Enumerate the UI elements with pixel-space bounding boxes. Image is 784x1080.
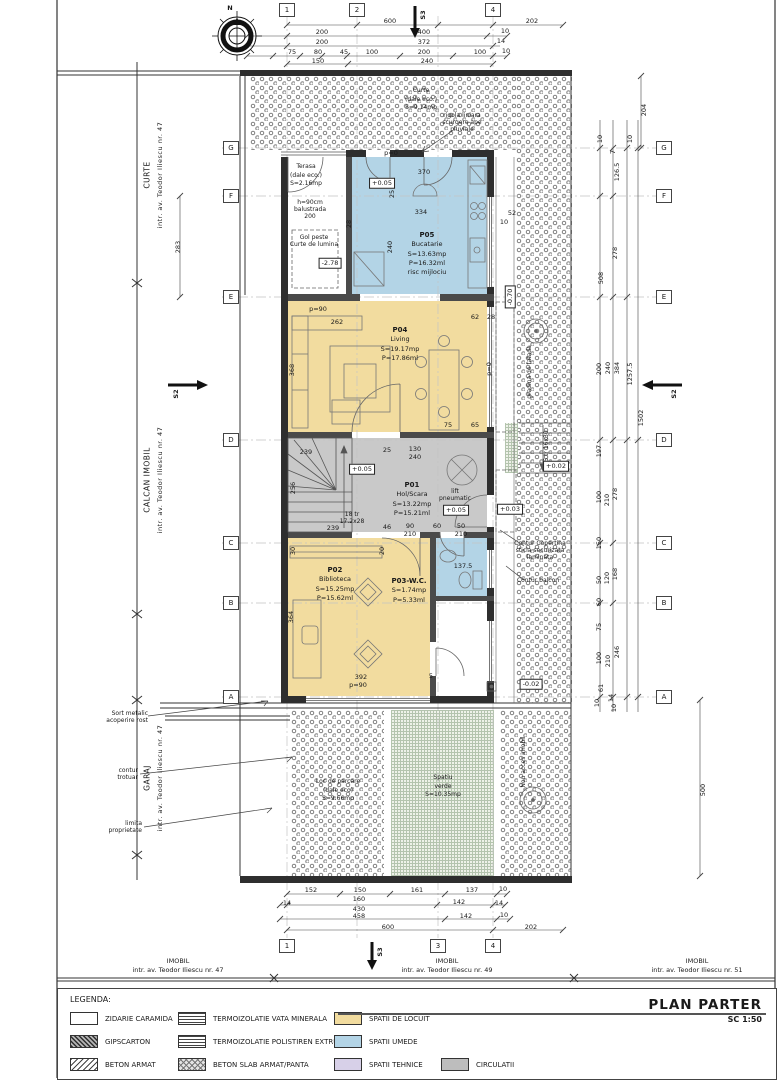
trot-l1: contur bbox=[70, 767, 138, 774]
lift-l2: pneumatic bbox=[439, 495, 471, 502]
dim-label: 240 bbox=[387, 241, 394, 253]
dim-label: 46 bbox=[383, 524, 391, 531]
curte-name: Curte bbox=[405, 87, 437, 96]
legend-item-umede: SPATII UMEDE bbox=[334, 1035, 418, 1048]
dim-label: 50 bbox=[457, 523, 465, 530]
note-rigola: rigola liniara scurgere ape pluviale bbox=[442, 112, 481, 134]
exterior-steps bbox=[505, 423, 518, 473]
swatch-umede bbox=[334, 1035, 362, 1048]
lim-l2: proprietate bbox=[70, 827, 142, 834]
note-contur-trotuar: contur trotuar bbox=[70, 767, 138, 781]
dim-label: p=90 bbox=[309, 306, 327, 313]
dim-label: 210 bbox=[605, 655, 612, 667]
dim-label: 278 bbox=[612, 247, 619, 259]
dim-label: 28 bbox=[487, 314, 495, 321]
legend-label: SPATII DE LOCUIT bbox=[369, 1015, 430, 1023]
dim-label: 246 bbox=[614, 646, 621, 658]
cop-l3: laminata bbox=[514, 554, 566, 561]
level-marker: +0.02 bbox=[543, 461, 569, 472]
grid-row-b-right: B bbox=[656, 596, 672, 610]
dim-label: 14 bbox=[495, 900, 503, 907]
dim-label: 65 bbox=[471, 422, 479, 429]
dim-label: 168 bbox=[612, 568, 619, 580]
dim-label: 150 bbox=[596, 537, 603, 549]
legend-label: BETON SLAB ARMAT/PANTA bbox=[213, 1061, 309, 1069]
street-garaj-addr: intr. av. Teodor Iliescu nr. 47 bbox=[156, 725, 164, 832]
room-perimeter: P=15.62ml bbox=[316, 594, 355, 603]
dim-label: 30 bbox=[290, 547, 297, 555]
grid-row-g-right: G bbox=[656, 141, 672, 155]
room-area: S=19.17mp bbox=[381, 345, 420, 354]
legend-item-gipscarton: GIPSCARTON bbox=[70, 1035, 150, 1048]
level-marker: -2.78 bbox=[319, 258, 342, 269]
room-perimeter: P=17.86ml bbox=[381, 354, 420, 363]
dim-label: 5 bbox=[429, 673, 433, 680]
balu-l3: 200 bbox=[294, 213, 326, 220]
swatch-gipscarton bbox=[70, 1035, 98, 1048]
dim-label: 14 bbox=[608, 694, 615, 702]
dim-label: 45 bbox=[340, 49, 348, 56]
grid-col-4-top: 4 bbox=[485, 3, 501, 17]
room-area: S=13.63mp bbox=[408, 250, 447, 259]
dim-label: 210 bbox=[604, 494, 611, 506]
dim-label: 25 bbox=[389, 190, 396, 198]
dim-label: 256 bbox=[290, 482, 297, 494]
dim-label: 25 bbox=[383, 447, 391, 454]
dim-label: 10 bbox=[627, 135, 634, 143]
rig-l2: scurgere ape bbox=[442, 119, 481, 126]
legend-label: TERMOIZOLATIE POLISTIREN EXTRUDAT bbox=[213, 1038, 352, 1046]
curte-sub: (dale eco.) bbox=[405, 96, 437, 105]
gol-l2: Curte de lumina bbox=[290, 241, 338, 248]
compass-rose bbox=[212, 11, 262, 61]
dim-label: 7 bbox=[610, 150, 617, 154]
dim-label: 52 bbox=[508, 210, 516, 217]
dim-label: 200 bbox=[418, 49, 430, 56]
section-s2-right-label: S2 bbox=[671, 389, 678, 398]
swatch-beton-armat bbox=[70, 1058, 98, 1071]
room-id: P01 bbox=[393, 480, 432, 490]
dim-label: 240 bbox=[409, 454, 421, 461]
cop-l2: sticla securizata bbox=[514, 547, 566, 554]
legend-label: TERMOIZOLATIE VATA MINERALA bbox=[213, 1015, 327, 1023]
grid-col-2-top: 2 bbox=[349, 3, 365, 17]
title-rule bbox=[338, 1013, 766, 1015]
dim-label: 120 bbox=[604, 572, 611, 584]
room-name: Hol/Scara bbox=[393, 490, 432, 499]
room-area: S=15.25mp bbox=[316, 585, 355, 594]
dim-label: 200 bbox=[596, 363, 603, 375]
dim-label: 100 bbox=[596, 491, 603, 503]
paving-bottom-right bbox=[500, 710, 571, 876]
note-sort-metalic: Sort metalic acoperire rost bbox=[70, 710, 148, 724]
grid-row-e-right: E bbox=[656, 290, 672, 304]
trot-l2: trotuar bbox=[70, 774, 138, 781]
grid-row-a-left: A bbox=[223, 690, 239, 704]
balu-l1: h=90cm bbox=[294, 199, 326, 206]
level-marker: +0.03 bbox=[497, 504, 523, 515]
room-label-p04: P04 Living S=19.17mp P=17.86ml bbox=[381, 325, 420, 363]
grid-col-1-bottom: 1 bbox=[279, 939, 295, 953]
dim-label: 126.5 bbox=[614, 163, 621, 182]
legend-heading: LEGENDA: bbox=[70, 995, 111, 1004]
lim-l1: limita bbox=[70, 820, 142, 827]
dim-label: 458 bbox=[353, 913, 365, 920]
dim-label: 1257.5 bbox=[627, 363, 634, 386]
dim-label: 142 bbox=[453, 899, 465, 906]
dim-label: 130 bbox=[409, 446, 421, 453]
dim-label: 600 bbox=[384, 18, 396, 25]
dim-label: 10 bbox=[502, 48, 510, 55]
dim-label: p=90 bbox=[349, 682, 367, 689]
room-label-p02: P02 Biblioteca S=15.25mp P=15.62ml bbox=[316, 565, 355, 603]
dim-label: 10 bbox=[501, 28, 509, 35]
label-parcare: Loc de parcare (dale eco) S=9.66mp bbox=[316, 778, 360, 804]
imobil-47-addr: intr. av. Teodor Iliescu nr. 47 bbox=[132, 966, 223, 975]
legend-label: CIRCULATII bbox=[476, 1061, 514, 1069]
rig-l1: rigola liniara bbox=[442, 112, 481, 119]
legend-item-tehnice: SPATII TEHNICE bbox=[334, 1058, 423, 1071]
dim-label: 364 bbox=[288, 611, 295, 623]
legend-label: SPATII UMEDE bbox=[369, 1038, 418, 1046]
grid-row-a-right: A bbox=[656, 690, 672, 704]
parcare-sub: (dale eco) bbox=[316, 787, 360, 796]
section-s3-top-label: S3 bbox=[420, 10, 427, 19]
dim-label: 61 bbox=[598, 684, 605, 692]
dim-label: 239 bbox=[300, 449, 312, 456]
legend-label: SPATII TEHNICE bbox=[369, 1061, 423, 1069]
dim-label: 100 bbox=[596, 652, 603, 664]
dim-label: 100 bbox=[366, 49, 378, 56]
dim-label: 334 bbox=[415, 209, 427, 216]
legend-item-circulatii: CIRCULATII bbox=[441, 1058, 514, 1071]
paving-strip-right bbox=[516, 76, 572, 703]
street-curte-addr: intr. av. Teodor Iliescu nr. 47 bbox=[156, 122, 164, 229]
grid-row-g-left: G bbox=[223, 141, 239, 155]
swatch-vata bbox=[178, 1012, 206, 1025]
terasa-sub: (dale eco.) bbox=[290, 172, 322, 181]
dim-label: 210 bbox=[404, 531, 416, 538]
swatch-beton-slab bbox=[178, 1058, 206, 1071]
dim-label: 60 bbox=[433, 523, 441, 530]
plan-title: PLAN PARTER bbox=[648, 997, 762, 1013]
parcare-name: Loc de parcare bbox=[316, 778, 360, 787]
room-name: Biblioteca bbox=[316, 575, 355, 584]
grid-col-3-bottom: 3 bbox=[430, 939, 446, 953]
dim-label: 197 bbox=[596, 445, 603, 457]
swatch-polistiren bbox=[178, 1035, 206, 1048]
label-spatiu-verde: Spatiu verde S=10.35mp bbox=[425, 774, 461, 800]
gol-l1: Gol peste bbox=[290, 234, 338, 241]
grid-row-c-right: C bbox=[656, 536, 672, 550]
legend-label: ZIDARIE CARAMIDA bbox=[105, 1015, 173, 1023]
room-note: risc mijlociu bbox=[408, 268, 447, 277]
dim-label: 210 bbox=[455, 531, 467, 538]
dim-label: 240 bbox=[421, 58, 433, 65]
dim-label: 240 bbox=[605, 362, 612, 374]
curte-area: S=9.14mp bbox=[405, 104, 437, 113]
dim-label: 75 bbox=[444, 422, 452, 429]
dim-label: 14 bbox=[283, 900, 291, 907]
dim-label: 20 bbox=[379, 547, 386, 555]
terasa-area: S=2.16mp bbox=[290, 180, 322, 189]
dim-label: 10 bbox=[594, 699, 601, 707]
room-perimeter: P=16.32ml bbox=[408, 259, 447, 268]
plan-scale: SC 1:50 bbox=[728, 1015, 762, 1024]
legend-item-zidarie: ZIDARIE CARAMIDA bbox=[70, 1012, 173, 1025]
dim-label: 239 bbox=[327, 525, 339, 532]
dim-label: 50 bbox=[596, 576, 603, 584]
dim-label: 80 bbox=[314, 49, 322, 56]
dim-label: p=0 bbox=[384, 150, 398, 157]
dim-label: 400 bbox=[418, 29, 430, 36]
room-label-p03: P03-W.C. S=1.74mp P=5.33ml bbox=[391, 576, 426, 605]
dim-label: 10 bbox=[499, 886, 507, 893]
dim-label: 62 bbox=[471, 314, 479, 321]
section-s2-left-label: S2 bbox=[173, 389, 180, 398]
dim-label: 204 bbox=[641, 104, 648, 116]
legend-item-vata: TERMOIZOLATIE VATA MINERALA bbox=[178, 1012, 327, 1025]
note-balcon: Contur balcon bbox=[517, 577, 559, 584]
label-gradina: gradina de fatada bbox=[527, 345, 533, 399]
room-area: S=1.74mp bbox=[391, 586, 426, 595]
dim-label: 200 bbox=[316, 39, 328, 46]
dim-label: 100 bbox=[474, 49, 486, 56]
room-name: Living bbox=[381, 335, 420, 344]
dim-label: 368 bbox=[289, 364, 296, 376]
grid-row-f-left: F bbox=[223, 189, 239, 203]
note-gol: Gol peste Curte de lumina bbox=[290, 234, 338, 248]
dim-label: 14 bbox=[497, 38, 505, 45]
floor-plan-sheet: 1 2 4 1 3 4 G F E D C B A G F E D C B A … bbox=[0, 0, 784, 1080]
room-label-p05: P05 Bucatarie S=13.63mp P=16.32ml risc m… bbox=[408, 230, 447, 278]
swatch-circulatii bbox=[441, 1058, 469, 1071]
imobil-49-addr: intr. av. Teodor Iliescu nr. 49 bbox=[401, 966, 492, 975]
note-lift: lift pneumatic bbox=[439, 488, 471, 502]
compass-north-label: N bbox=[227, 5, 232, 12]
room-name: Bucatarie bbox=[408, 240, 447, 249]
swatch-tehnice bbox=[334, 1058, 362, 1071]
room-id: P02 bbox=[316, 565, 355, 575]
dim-label: 202 bbox=[525, 924, 537, 931]
street-calcan-addr: intr. av. Teodor Iliescu nr. 47 bbox=[156, 427, 164, 534]
swatch-zidarie bbox=[70, 1012, 98, 1025]
st18-l1: 18 tr bbox=[340, 511, 365, 518]
street-garaj-name: GARAJ bbox=[143, 765, 152, 791]
level-marker: -0.02 bbox=[520, 679, 543, 690]
st18-l2: 17.2x28 bbox=[340, 518, 365, 525]
dim-label: 10 bbox=[500, 219, 508, 226]
room-perimeter: P=15.21ml bbox=[393, 509, 432, 518]
terasa-name: Terasa bbox=[290, 163, 322, 172]
dim-label: 600 bbox=[382, 924, 394, 931]
note-copertina: Contur Copertina sticla securizata lamin… bbox=[514, 540, 566, 562]
rig-l3: pluviale bbox=[442, 126, 481, 133]
street-curte-name: CURTE bbox=[143, 161, 152, 188]
dim-label: 150 bbox=[312, 58, 324, 65]
parcare-area: S=9.66mp bbox=[316, 795, 360, 804]
room-id: P03-W.C. bbox=[391, 576, 426, 586]
dim-label: 202 bbox=[526, 18, 538, 25]
label-terasa: Terasa (dale eco.) S=2.16mp bbox=[290, 163, 322, 189]
level-marker: +0.05 bbox=[443, 505, 469, 516]
legend-item-polistiren: TERMOIZOLATIE POLISTIREN EXTRUDAT bbox=[178, 1035, 352, 1048]
imobil-51: IMOBIL intr. av. Teodor Iliescu nr. 51 bbox=[651, 957, 742, 976]
note-stairs-18: 18 tr 17.2x28 bbox=[340, 511, 365, 525]
dim-label: 392 bbox=[355, 674, 367, 681]
grid-row-e-left: E bbox=[223, 290, 239, 304]
section-s3-bottom-label: S3 bbox=[377, 947, 384, 956]
dim-label: 152 bbox=[305, 887, 317, 894]
dim-label: p=0 bbox=[486, 362, 493, 376]
dim-label: 150 bbox=[354, 887, 366, 894]
dim-label: 384 bbox=[614, 362, 621, 374]
dim-label: 28 bbox=[346, 220, 353, 228]
dim-label: 370 bbox=[418, 169, 430, 176]
imobil-49: IMOBIL intr. av. Teodor Iliescu nr. 49 bbox=[401, 957, 492, 976]
dim-label: 372 bbox=[418, 39, 430, 46]
dim-label: 500 bbox=[700, 784, 707, 796]
dim-label: 60 bbox=[596, 598, 603, 606]
balu-l2: balustrada bbox=[294, 206, 326, 213]
grid-row-b-left: B bbox=[223, 596, 239, 610]
cop-l1: Contur Copertina bbox=[514, 540, 566, 547]
dim-label: 10 bbox=[597, 135, 604, 143]
imobil-51-addr: intr. av. Teodor Iliescu nr. 51 bbox=[651, 966, 742, 975]
dim-label: 142 bbox=[460, 913, 472, 920]
grid-row-f-right: F bbox=[656, 189, 672, 203]
legend-item-beton-slab: BETON SLAB ARMAT/PANTA bbox=[178, 1058, 309, 1071]
label-acces: Nou acces imobil bbox=[521, 736, 527, 787]
sort-l1: Sort metalic bbox=[70, 710, 148, 717]
imobil-47: IMOBIL intr. av. Teodor Iliescu nr. 47 bbox=[132, 957, 223, 976]
dim-label: 75 bbox=[288, 49, 296, 56]
dim-label: 10 bbox=[500, 912, 508, 919]
imobil-51-name: IMOBIL bbox=[651, 957, 742, 966]
dim-label: 1502 bbox=[638, 410, 645, 427]
imobil-49-name: IMOBIL bbox=[401, 957, 492, 966]
grid-col-1-top: 1 bbox=[279, 3, 295, 17]
grid-col-4-bottom: 4 bbox=[485, 939, 501, 953]
room-label-p01: P01 Hol/Scara S=13.22mp P=15.21ml bbox=[393, 480, 432, 518]
room-id: P04 bbox=[381, 325, 420, 335]
lift-l1: lift bbox=[439, 488, 471, 495]
dim-label: 137.5 bbox=[454, 563, 473, 570]
note-balustrada: h=90cm balustrada 200 bbox=[294, 199, 326, 221]
dim-label: 10 bbox=[611, 704, 618, 712]
grid-row-d-left: D bbox=[223, 433, 239, 447]
dim-label: 161 bbox=[411, 887, 423, 894]
legend-label: BETON ARMAT bbox=[105, 1061, 156, 1069]
dim-label: 278 bbox=[612, 488, 619, 500]
level-marker: +0.05 bbox=[369, 178, 395, 189]
room-perimeter: P=5.33ml bbox=[391, 596, 426, 605]
dim-label: 200 bbox=[316, 29, 328, 36]
dim-label: 262 bbox=[331, 319, 343, 326]
dim-label: 160 bbox=[353, 896, 365, 903]
note-limita-proprietate: limita proprietate bbox=[70, 820, 142, 834]
label-curte: Curte (dale eco.) S=9.14mp bbox=[405, 87, 437, 113]
room-id: P05 bbox=[408, 230, 447, 240]
dim-label: 90 bbox=[406, 523, 414, 530]
street-calcan-name: CALCAN IMOBIL bbox=[143, 447, 152, 513]
legend-label: GIPSCARTON bbox=[105, 1038, 150, 1046]
verde-area: S=10.35mp bbox=[425, 791, 461, 800]
sort-l2: acoperire rost bbox=[70, 717, 148, 724]
room-living bbox=[288, 301, 487, 432]
grid-row-d-right: D bbox=[656, 433, 672, 447]
level-marker: +0.05 bbox=[349, 464, 375, 475]
dim-label: 508 bbox=[598, 272, 605, 284]
grid-row-c-left: C bbox=[223, 536, 239, 550]
dim-label: 75 bbox=[596, 623, 603, 631]
imobil-47-name: IMOBIL bbox=[132, 957, 223, 966]
legend-panel: LEGENDA: ZIDARIE CARAMIDA GIPSCARTON BET… bbox=[57, 988, 777, 1080]
dim-label: 283 bbox=[175, 241, 182, 253]
dim-label: 137 bbox=[466, 887, 478, 894]
level-marker: -0.70 bbox=[505, 286, 516, 309]
room-area: S=13.22mp bbox=[393, 500, 432, 509]
verde-sub: verde bbox=[425, 783, 461, 792]
verde-name: Spatiu bbox=[425, 774, 461, 783]
legend-item-beton-armat: BETON ARMAT bbox=[70, 1058, 156, 1071]
note-stairs-5: 5 tr 16x30 bbox=[544, 430, 550, 461]
